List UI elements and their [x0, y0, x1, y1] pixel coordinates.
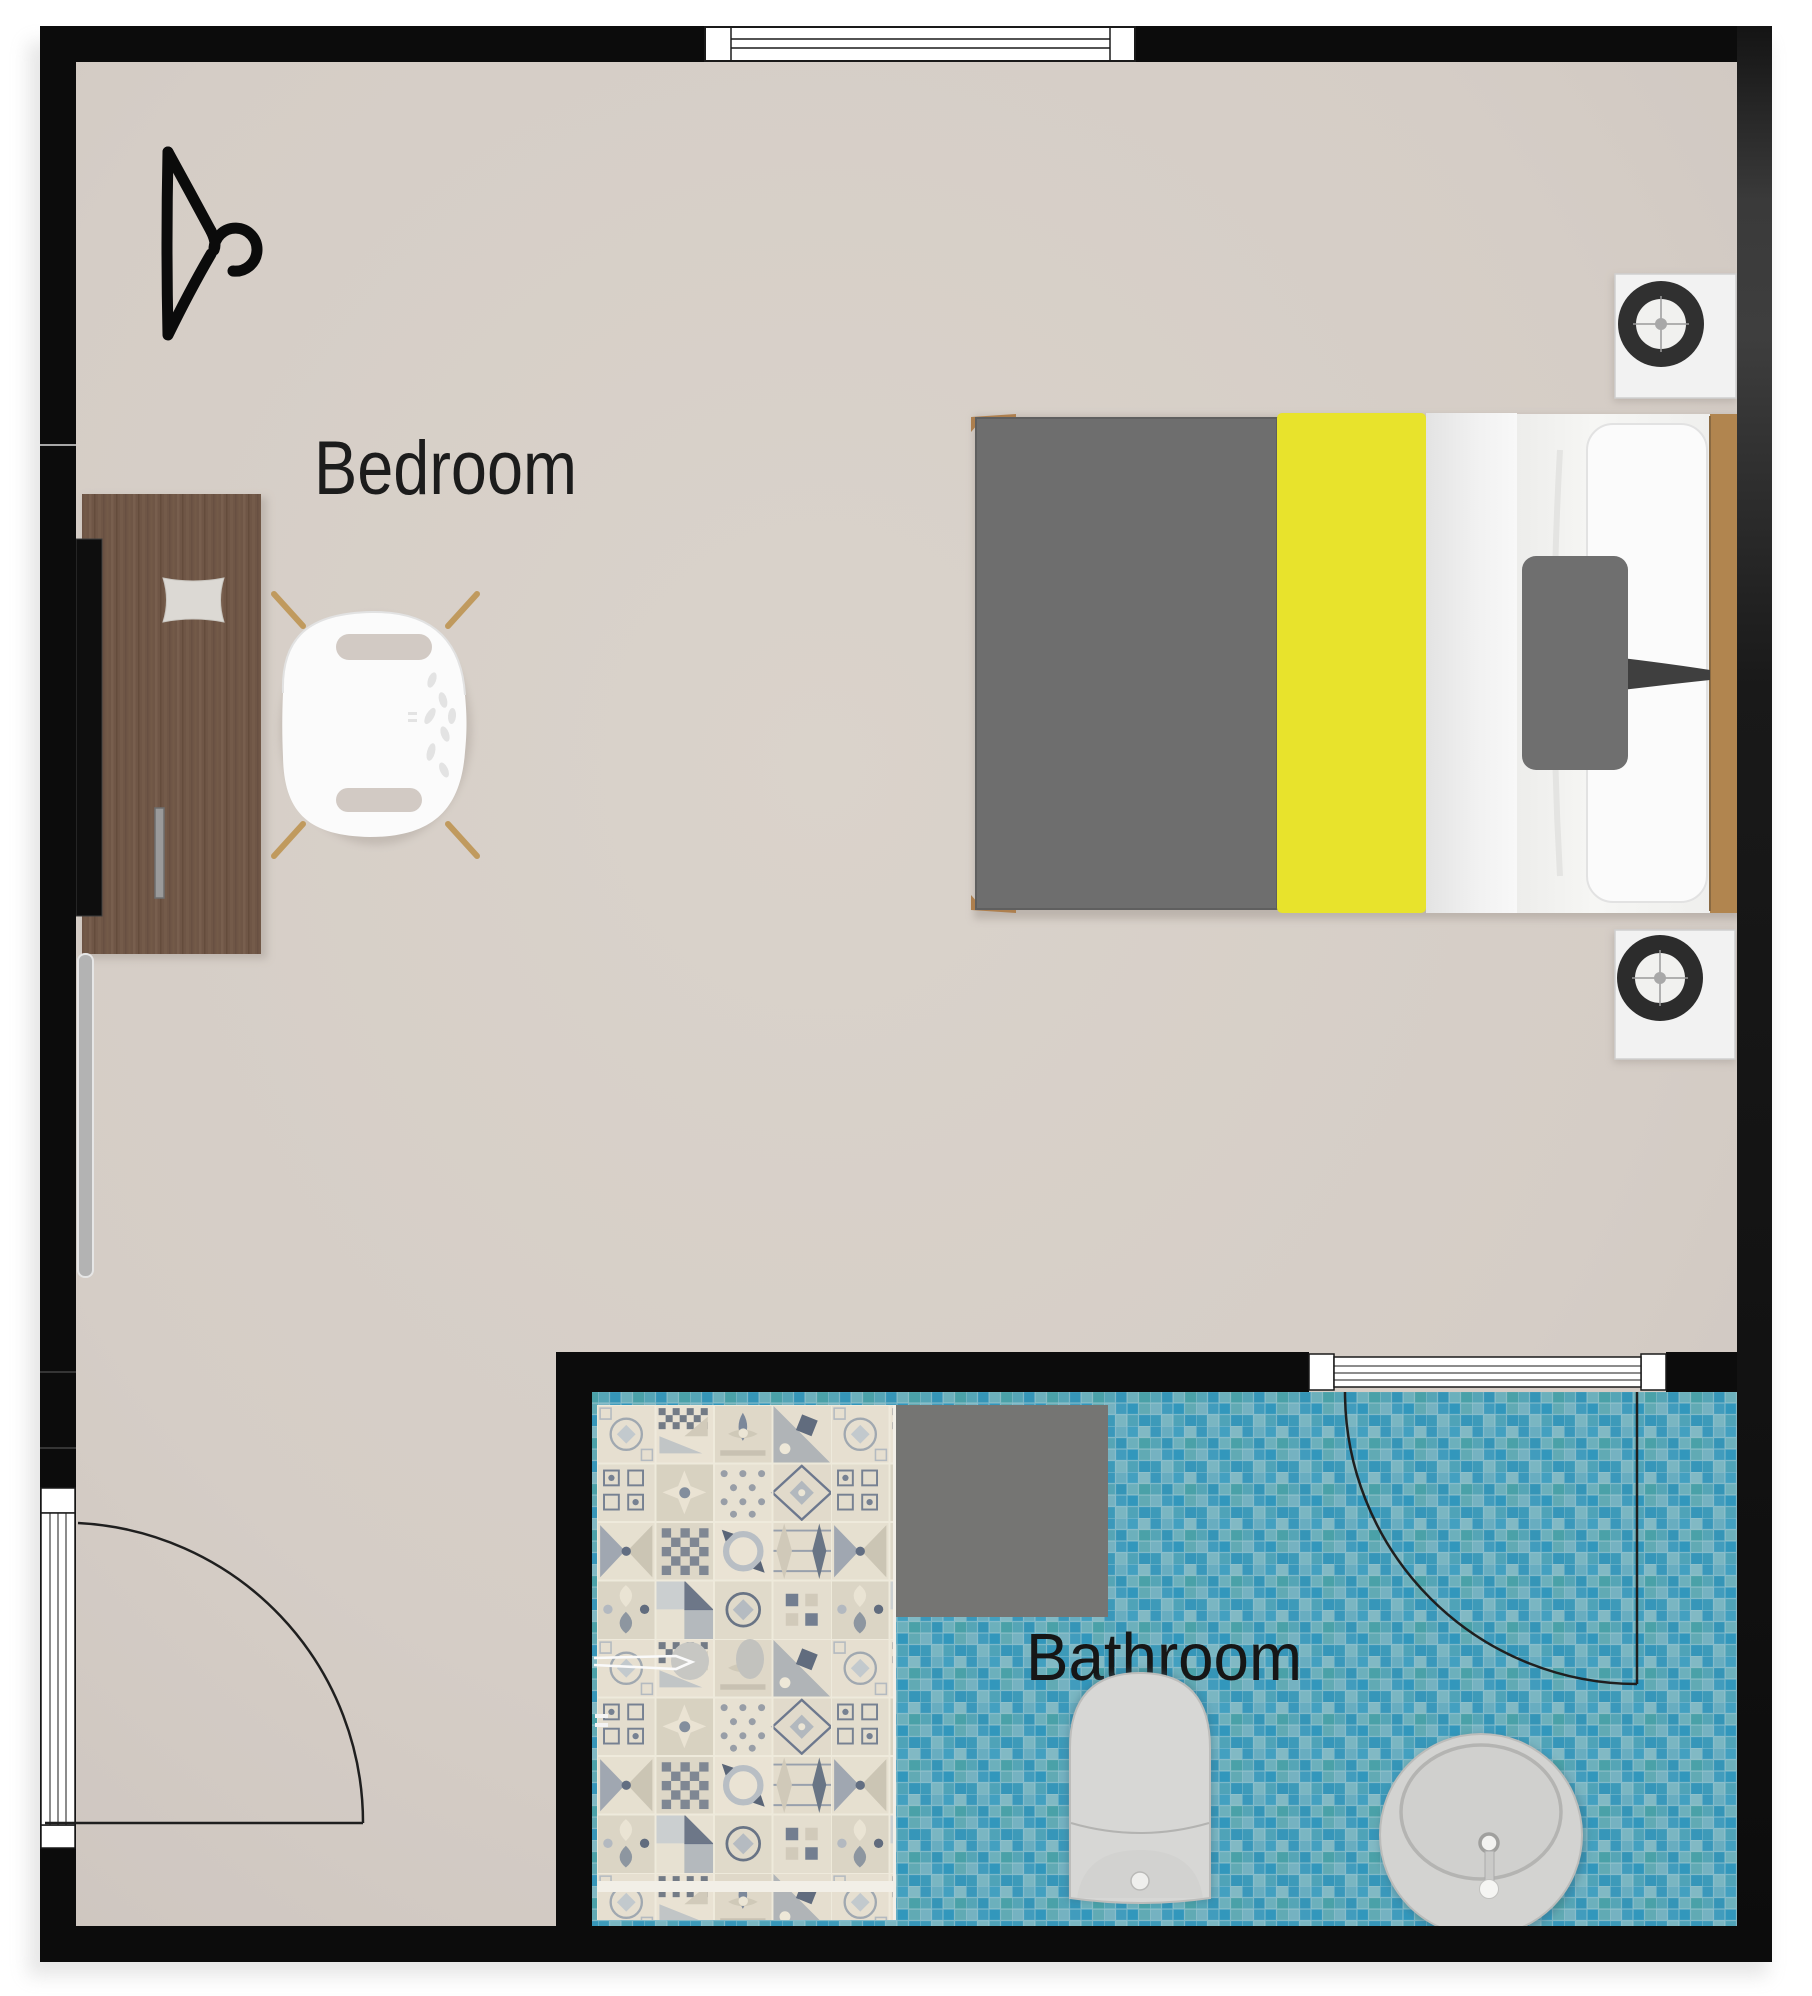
svg-text:Bedroom: Bedroom: [314, 426, 577, 511]
